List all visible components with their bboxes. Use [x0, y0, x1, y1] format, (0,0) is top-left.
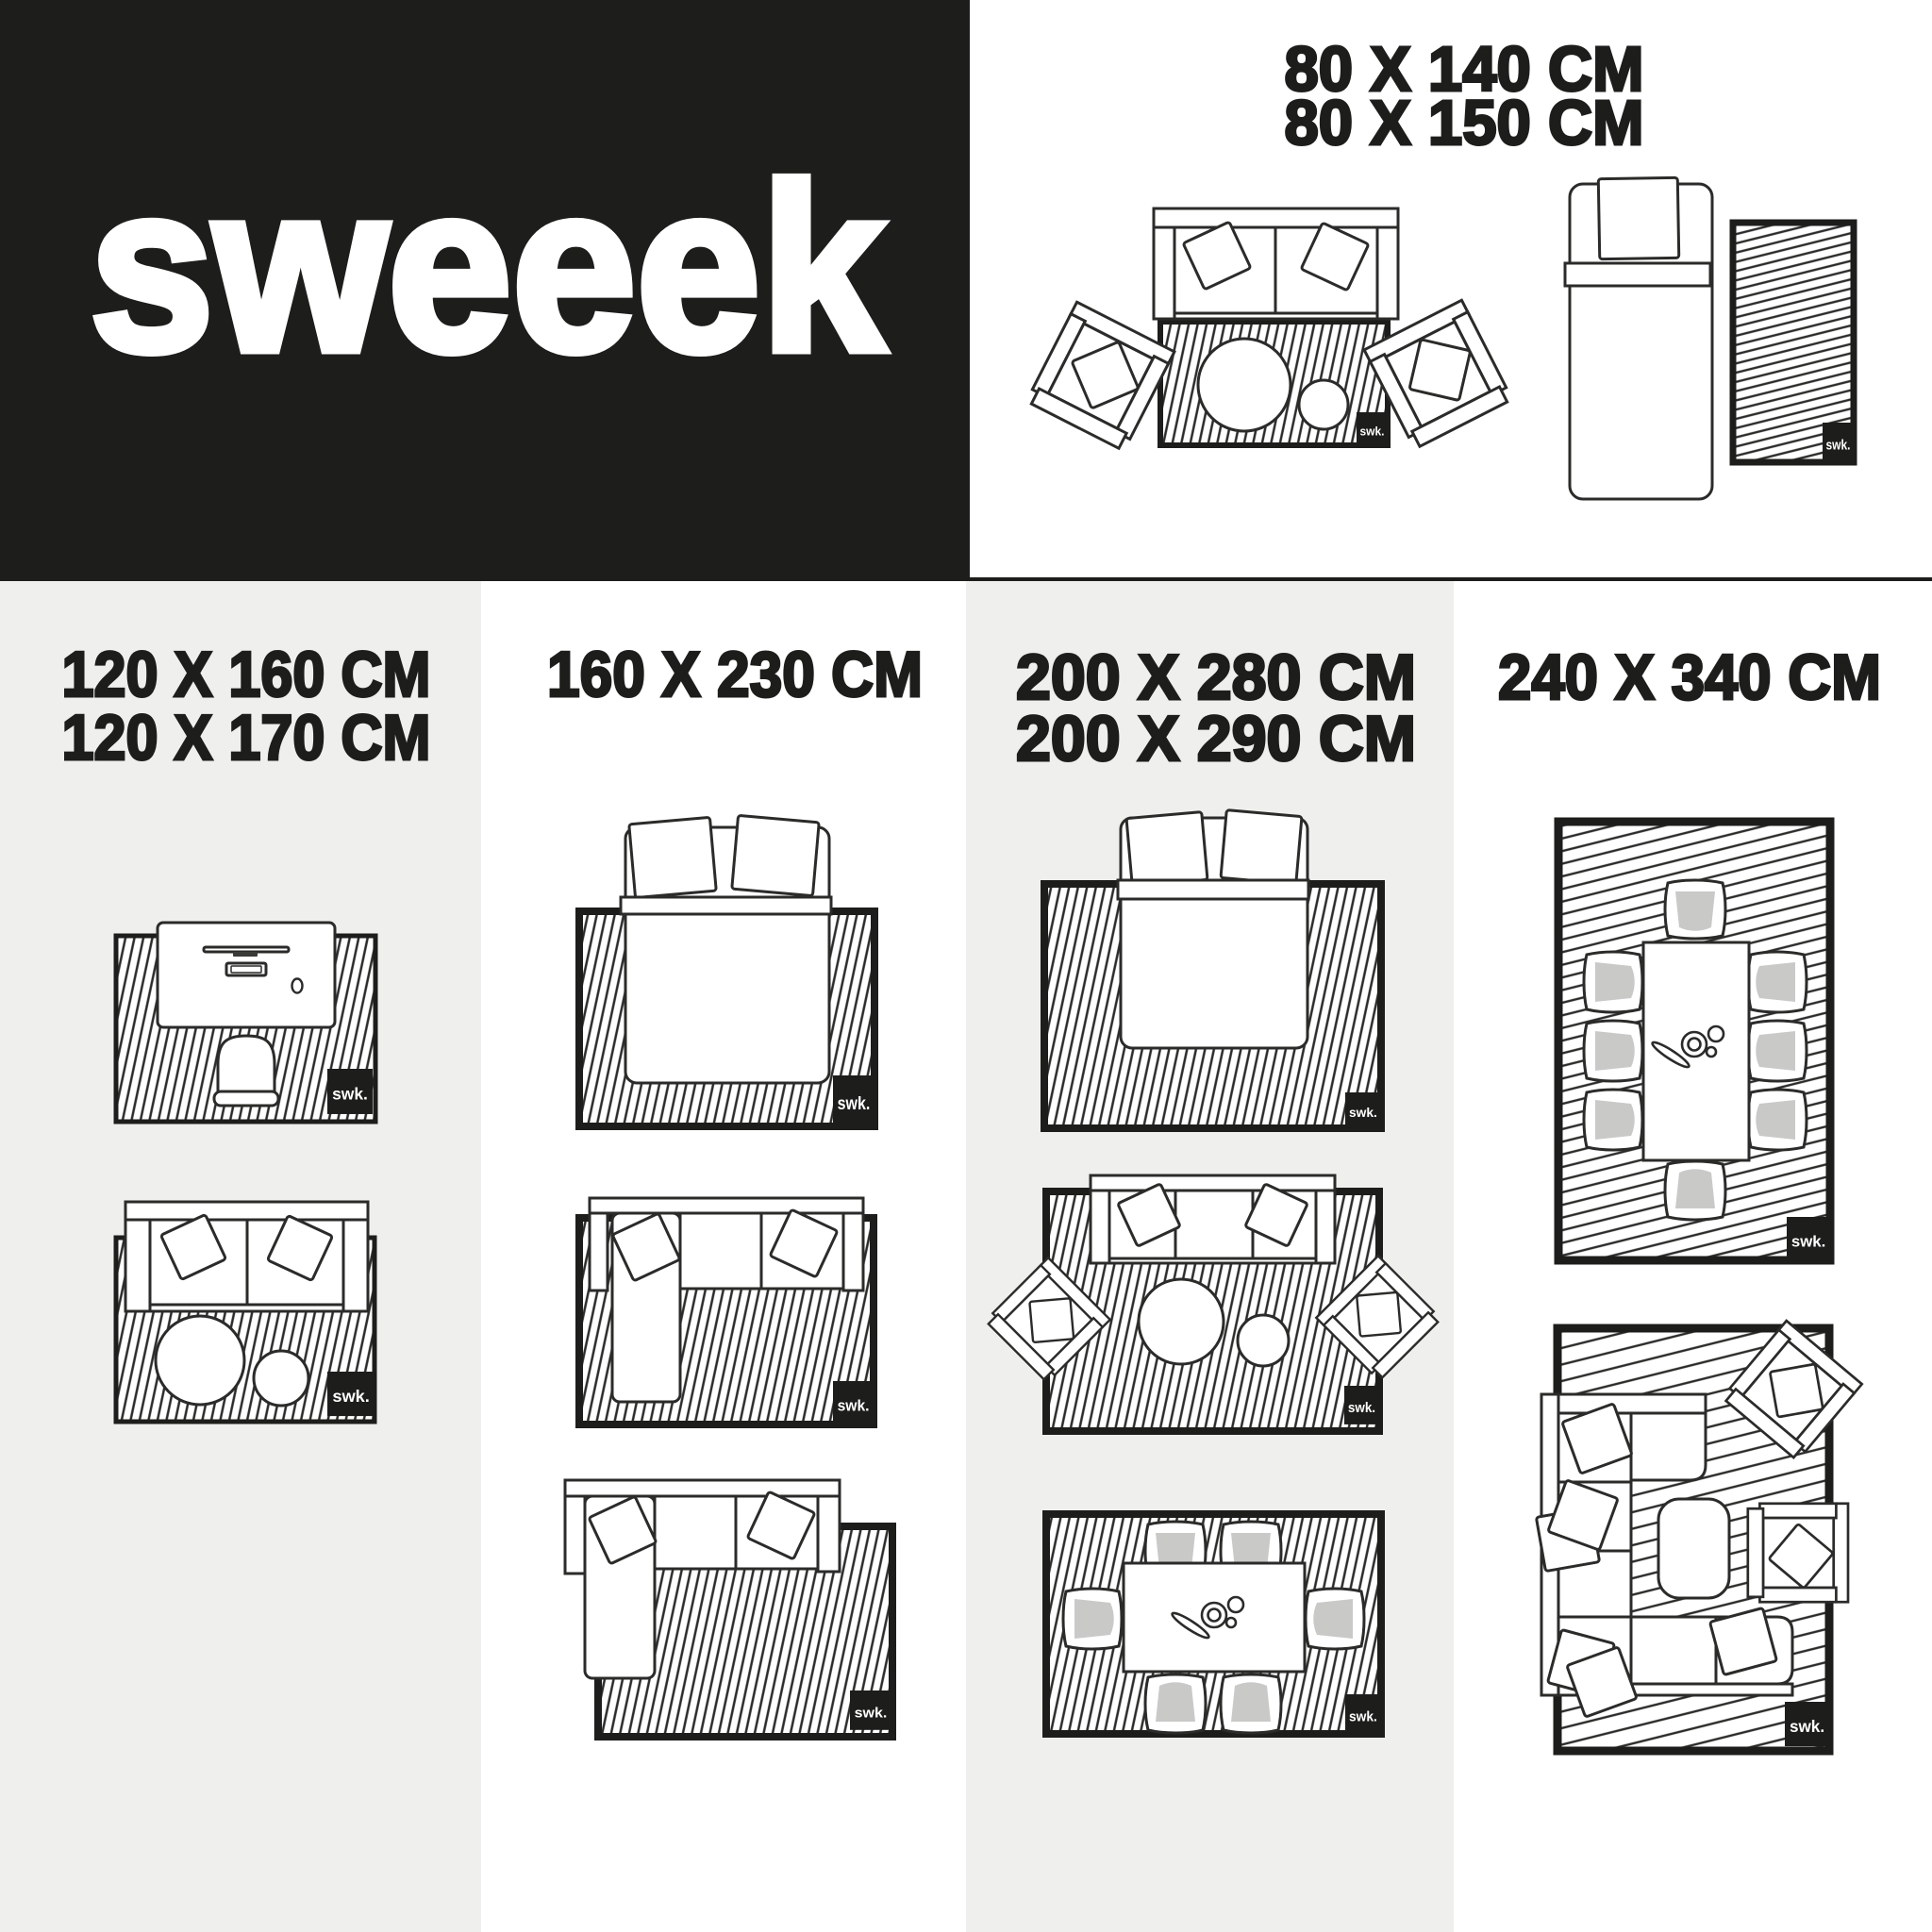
svg-text:120 X 170 CM: 120 X 170 CM [62, 702, 431, 774]
svg-text:120 X 160 CM: 120 X 160 CM [62, 639, 431, 710]
svg-text:sweeek: sweeek [90, 136, 886, 401]
svg-text:240 X 340 CM: 240 X 340 CM [1498, 641, 1881, 713]
svg-text:160 X 230 CM: 160 X 230 CM [547, 639, 923, 710]
svg-text:200 X 290 CM: 200 X 290 CM [1016, 703, 1416, 774]
svg-text:80 X 150 CM: 80 X 150 CM [1285, 88, 1644, 158]
